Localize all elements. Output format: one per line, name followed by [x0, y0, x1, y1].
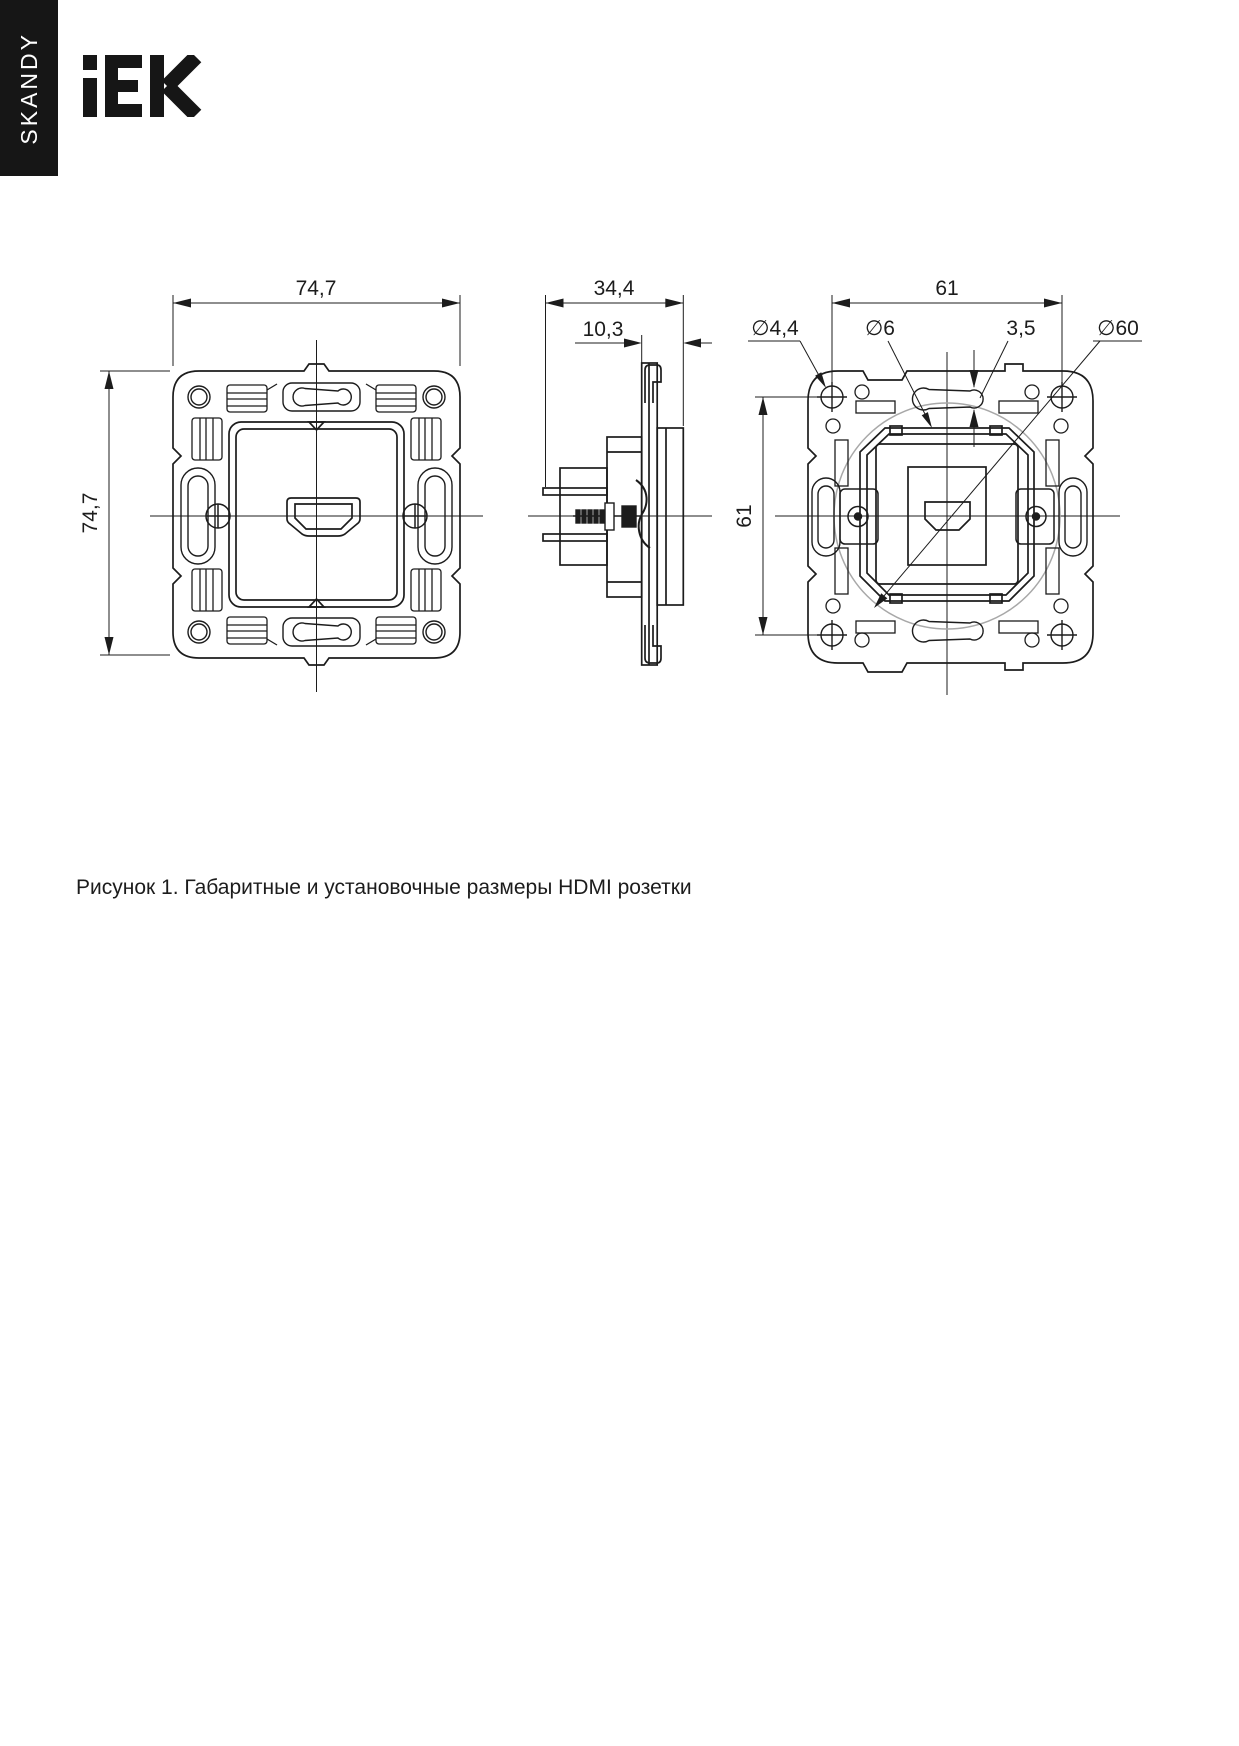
dim-front-height: 74,7: [79, 493, 102, 534]
dim-slot-end-dia: ∅6: [865, 317, 895, 340]
dim-side-front-projection: 10,3: [583, 318, 624, 341]
side-view: 34,4 10,3: [528, 277, 712, 665]
dim-rear-width: 61: [935, 277, 958, 300]
technical-drawing: 74,7 74,7: [0, 0, 1239, 910]
document-page: SKANDY: [0, 0, 1239, 1746]
rear-view: 61 61 ∅4,4 ∅6: [733, 277, 1142, 695]
front-view: 74,7 74,7: [79, 277, 483, 692]
dim-install-dia: ∅60: [1097, 317, 1139, 340]
dim-screw-hole-dia: ∅4,4: [751, 317, 799, 340]
dim-front-width: 74,7: [296, 277, 337, 300]
dim-side-depth: 34,4: [594, 277, 635, 300]
dim-rear-height: 61: [733, 504, 756, 527]
figure-caption: Рисунок 1. Габаритные и установочные раз…: [76, 876, 692, 900]
dim-slot-width: 3,5: [1006, 317, 1035, 340]
